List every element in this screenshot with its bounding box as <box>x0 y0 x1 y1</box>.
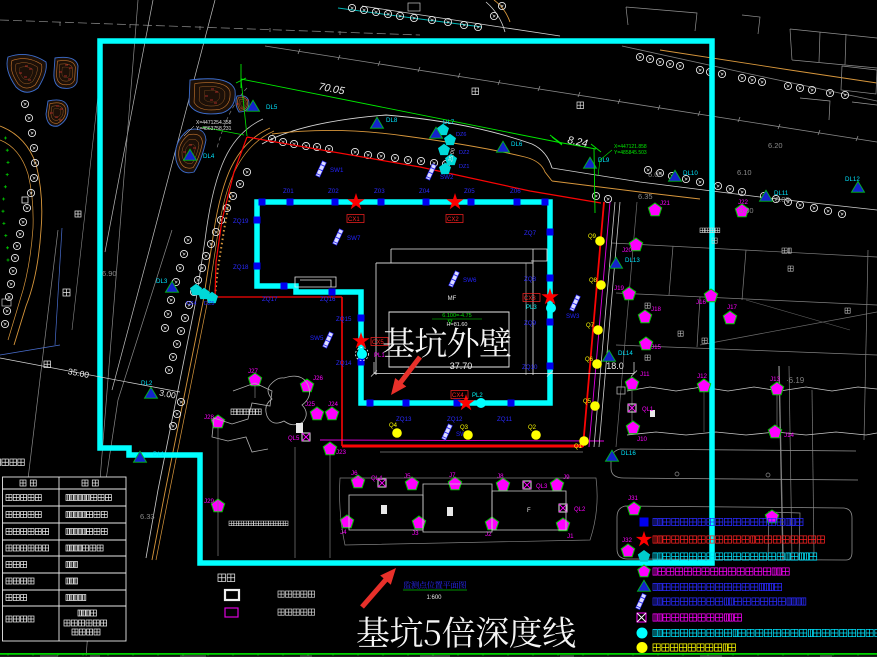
svg-text:DL4: DL4 <box>203 153 215 160</box>
svg-text:QL4: QL4 <box>371 476 383 482</box>
svg-text:J26: J26 <box>313 375 324 382</box>
svg-text:J29: J29 <box>204 498 215 505</box>
svg-text:Z05: Z05 <box>464 188 475 195</box>
svg-text:ZQ17: ZQ17 <box>262 296 278 303</box>
svg-text:6.33: 6.33 <box>140 512 155 521</box>
svg-text:DL14: DL14 <box>618 350 633 357</box>
svg-text:ZQ9: ZQ9 <box>524 320 537 327</box>
svg-text:DZ2: DZ2 <box>459 150 469 156</box>
svg-text:ZQ13: ZQ13 <box>396 416 412 423</box>
svg-text:CX3: CX3 <box>524 296 536 302</box>
svg-text:37.70: 37.70 <box>450 361 473 371</box>
svg-text:SW7: SW7 <box>347 235 361 242</box>
svg-text:6.09: 6.09 <box>648 170 663 179</box>
svg-text:PL3: PL3 <box>526 305 537 311</box>
svg-text:J8: J8 <box>497 473 504 480</box>
svg-text:Q5: Q5 <box>583 399 592 405</box>
svg-text:QL5: QL5 <box>288 436 300 442</box>
svg-text:J31: J31 <box>628 495 639 502</box>
svg-text:Q8: Q8 <box>589 278 598 284</box>
svg-text:18.0: 18.0 <box>606 361 624 371</box>
svg-text:J16: J16 <box>696 299 707 306</box>
svg-text:J6: J6 <box>351 470 358 477</box>
svg-text:6.10: 6.10 <box>737 168 752 177</box>
svg-text:J19: J19 <box>614 285 625 292</box>
svg-text:1:600: 1:600 <box>426 595 442 601</box>
svg-text:Q2: Q2 <box>528 425 537 431</box>
svg-text:Q6: Q6 <box>585 357 594 363</box>
svg-text:J15: J15 <box>651 344 662 351</box>
svg-text:DL8: DL8 <box>386 117 398 124</box>
svg-text:SW1: SW1 <box>330 167 344 174</box>
svg-text:Q3: Q3 <box>460 425 469 431</box>
svg-text:ZQ12: ZQ12 <box>447 416 463 423</box>
svg-text:DZ6: DZ6 <box>456 132 466 138</box>
svg-text:6.20: 6.20 <box>768 141 783 150</box>
svg-text:J13: J13 <box>770 376 781 383</box>
svg-text:J22: J22 <box>738 199 749 206</box>
svg-text:SW3: SW3 <box>566 313 580 320</box>
svg-text:CX5: CX5 <box>372 340 384 346</box>
svg-text:J24: J24 <box>328 401 339 408</box>
svg-text:DZ5: DZ5 <box>204 301 214 307</box>
svg-text:DL6: DL6 <box>511 141 523 148</box>
svg-text:J28: J28 <box>204 414 215 421</box>
svg-text:Q1: Q1 <box>574 444 583 450</box>
svg-text:J21: J21 <box>660 200 671 207</box>
svg-text:DL16: DL16 <box>621 450 636 457</box>
svg-text:SW2: SW2 <box>440 174 454 181</box>
svg-text:ZQ19: ZQ19 <box>233 218 249 225</box>
svg-text:ZQ8: ZQ8 <box>524 276 537 283</box>
svg-text:J11: J11 <box>640 371 650 378</box>
svg-text:CX2: CX2 <box>447 217 459 223</box>
svg-text:DZ1: DZ1 <box>459 164 469 170</box>
svg-text:J14: J14 <box>784 432 795 439</box>
svg-text:6.90: 6.90 <box>102 269 117 278</box>
svg-text:Q7: Q7 <box>586 323 595 329</box>
svg-text:DL5: DL5 <box>266 104 278 111</box>
svg-text:J27: J27 <box>248 368 259 375</box>
svg-text:Q4: Q4 <box>389 423 398 429</box>
svg-text:J3: J3 <box>412 530 419 537</box>
svg-text:QL1: QL1 <box>642 407 654 413</box>
svg-text:Q9: Q9 <box>588 234 597 240</box>
svg-text:ZQ7: ZQ7 <box>524 230 537 237</box>
svg-text:6.100=-4.75: 6.100=-4.75 <box>442 313 472 319</box>
svg-text:DL3: DL3 <box>156 278 168 285</box>
svg-text:MF: MF <box>448 296 457 302</box>
svg-text:6.30: 6.30 <box>739 206 754 215</box>
svg-text:J9: J9 <box>563 474 570 481</box>
svg-text:J18: J18 <box>651 306 662 313</box>
svg-text:PL1: PL1 <box>374 353 385 359</box>
svg-text:Z04: Z04 <box>419 188 430 195</box>
svg-text:J25: J25 <box>305 401 316 408</box>
svg-text:6.09: 6.09 <box>775 195 790 204</box>
svg-text:J10: J10 <box>637 436 648 443</box>
svg-text:ZQ18: ZQ18 <box>233 264 249 271</box>
svg-text:ZQ11: ZQ11 <box>497 416 513 423</box>
svg-text:DL10: DL10 <box>683 170 698 177</box>
svg-text:QL3: QL3 <box>536 484 548 490</box>
svg-text:DL13: DL13 <box>625 257 640 264</box>
svg-text:SW6: SW6 <box>463 277 477 284</box>
svg-text:J20: J20 <box>622 247 633 254</box>
svg-text:Z03: Z03 <box>374 188 385 195</box>
svg-text:DZ4: DZ4 <box>186 301 196 307</box>
svg-text:Z06: Z06 <box>510 188 521 195</box>
svg-text:H=81.60: H=81.60 <box>447 322 468 328</box>
svg-text:J17: J17 <box>727 304 738 311</box>
svg-text:ZQ10: ZQ10 <box>522 364 538 371</box>
svg-text:Y=485845.503: Y=485845.503 <box>614 150 647 156</box>
svg-text:SW5: SW5 <box>310 335 324 342</box>
svg-text:ZQ14: ZQ14 <box>336 360 352 367</box>
svg-text:DL12: DL12 <box>845 176 860 183</box>
svg-text:6.35: 6.35 <box>638 192 653 201</box>
svg-text:J23: J23 <box>336 449 347 456</box>
svg-text:J12: J12 <box>697 373 708 380</box>
svg-text:DL1: DL1 <box>153 451 165 458</box>
svg-text:CX4: CX4 <box>452 393 464 399</box>
svg-text:J5: J5 <box>404 473 411 480</box>
svg-text:ZQ15: ZQ15 <box>336 316 352 323</box>
svg-text:ZQ16: ZQ16 <box>320 296 336 303</box>
svg-text:Z01: Z01 <box>283 188 294 195</box>
svg-text:J32: J32 <box>622 537 633 544</box>
svg-text:J1: J1 <box>567 533 574 540</box>
svg-text:Z02: Z02 <box>328 188 339 195</box>
svg-text:F: F <box>527 508 531 514</box>
svg-text:CX1: CX1 <box>348 217 360 223</box>
svg-text:QL2: QL2 <box>574 507 586 513</box>
svg-text:J4: J4 <box>340 529 347 536</box>
svg-text:·6.19: ·6.19 <box>786 376 805 385</box>
svg-text:Y=4863758.231: Y=4863758.231 <box>196 126 232 132</box>
